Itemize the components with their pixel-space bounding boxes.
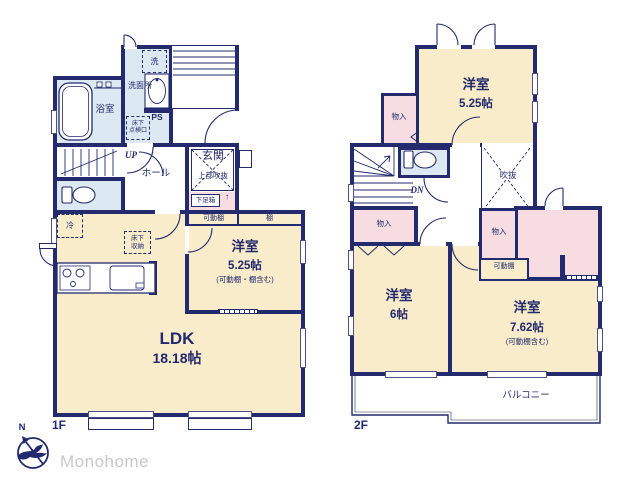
entrance-porch-step	[239, 150, 252, 168]
shoe-arrow: ↑	[221, 193, 233, 202]
west-room-size-1f: 5.25帖	[209, 260, 281, 273]
room-a-2f	[415, 45, 537, 147]
entrance-right-wall	[235, 45, 239, 111]
ps-label: PS	[144, 113, 170, 122]
room-a-east-window-2	[532, 101, 538, 123]
underfloor-storage: 床下 収納	[124, 231, 151, 254]
west-room-south-window-1f	[218, 309, 258, 314]
floor-plan-canvas: 洗 床下 点検口 冷 床下 収納	[0, 0, 640, 480]
room-a-name: 洋室	[446, 78, 506, 93]
entrance-label: 玄関	[194, 150, 232, 162]
brand-logo-text: Monohome	[60, 452, 149, 472]
room-c-note: (可動棚含む)	[487, 338, 567, 346]
kitchen-peninsula-wall	[149, 261, 157, 295]
shelf-movable-label-2f: 可動棚	[480, 263, 528, 271]
room-b-door-gap	[420, 242, 446, 246]
hall-ldk-gap	[155, 210, 180, 214]
terrace-step-2	[188, 418, 252, 430]
void-label: 吹抜	[492, 171, 524, 180]
west-room-name-1f: 洋室	[209, 240, 281, 255]
closet-center-label: 物入	[480, 228, 518, 236]
washer-space: 洗	[142, 50, 167, 73]
room-c-name: 洋室	[497, 301, 557, 316]
room-toilet-2f	[398, 147, 450, 178]
room-toilet-1f	[57, 181, 121, 210]
compass-north-label: N	[15, 423, 29, 433]
compass-circle	[18, 438, 48, 468]
void-right-wall	[533, 143, 537, 214]
bathroom-window	[51, 110, 57, 134]
washer-label: 洗	[151, 57, 159, 66]
room-b-south-window	[385, 371, 437, 378]
hatch-line2: 点検口	[129, 128, 147, 135]
shelf-movable-label-1f: 可動棚	[189, 215, 238, 223]
toilet-right-wall	[121, 177, 125, 214]
up-label: UP	[121, 151, 141, 161]
washroom-hall-gap	[127, 143, 153, 147]
compass	[17, 436, 48, 468]
stairwell-outline-1f	[171, 45, 239, 109]
hatch-line1: 床下	[132, 121, 144, 128]
room-c-size: 7.62帖	[492, 322, 562, 335]
wic-south-window	[565, 275, 598, 280]
room-a-size: 5.25帖	[446, 98, 506, 111]
room-a-east-window-1	[532, 73, 538, 95]
west-room-note-1f: (可動棚・棚含む)	[198, 276, 292, 284]
room-c-east-window-2	[597, 328, 603, 352]
closet-left-label: 物入	[358, 220, 410, 228]
hall-west-window-2f	[348, 184, 354, 202]
room-b-west-window-1	[348, 250, 354, 270]
ldk-size-label: 18.18帖	[130, 351, 224, 366]
room-c-east-window-1	[597, 286, 603, 302]
kitchen-backdoor-leaf	[39, 243, 57, 249]
shoe-box-label: 下足箱	[191, 194, 220, 207]
fridge-label: 冷	[66, 221, 74, 230]
floor2-label: 2F	[354, 419, 380, 432]
washroom-label: 洗面所	[124, 82, 156, 91]
room-a-door-gap	[452, 143, 480, 147]
floor1-label: 1F	[52, 419, 78, 432]
west-room-door-gap-1f	[185, 226, 189, 254]
room-b-west-window-2	[348, 316, 354, 336]
ldk-south-window-1	[88, 411, 154, 418]
underfloor-line2: 収納	[131, 243, 144, 250]
room-b-size: 6帖	[373, 309, 425, 322]
washroom-backdoor-gap	[124, 45, 137, 49]
terrace-step-1	[88, 418, 154, 430]
compass-needle	[26, 442, 43, 464]
ldk-south-window-2	[188, 411, 252, 418]
balcony-label: バルコニー	[487, 391, 565, 401]
wic-door-gap	[545, 206, 563, 210]
compass-arrowhead	[22, 436, 29, 444]
room-a-top-doors-mullion	[461, 45, 472, 49]
underfloor-line1: 床下	[131, 235, 144, 242]
entrance-note-label: 上部吹抜	[191, 172, 235, 180]
room-c-south-window	[487, 371, 547, 378]
ldk-east-window	[300, 328, 306, 368]
dn-label: DN	[404, 186, 430, 196]
fridge-space: 冷	[57, 214, 83, 238]
room-b-name: 洋室	[373, 289, 425, 304]
west-room-east-window-1f	[300, 240, 306, 264]
shelf-label-1f: 棚	[238, 215, 301, 223]
ldk-name-label: LDK	[137, 330, 217, 349]
closet-top-label: 物入	[381, 113, 417, 121]
room-c-door-gap	[452, 242, 478, 246]
bathroom-label: 浴室	[90, 105, 120, 115]
hall-label: ホール	[135, 169, 177, 179]
bird-icon	[17, 444, 47, 460]
